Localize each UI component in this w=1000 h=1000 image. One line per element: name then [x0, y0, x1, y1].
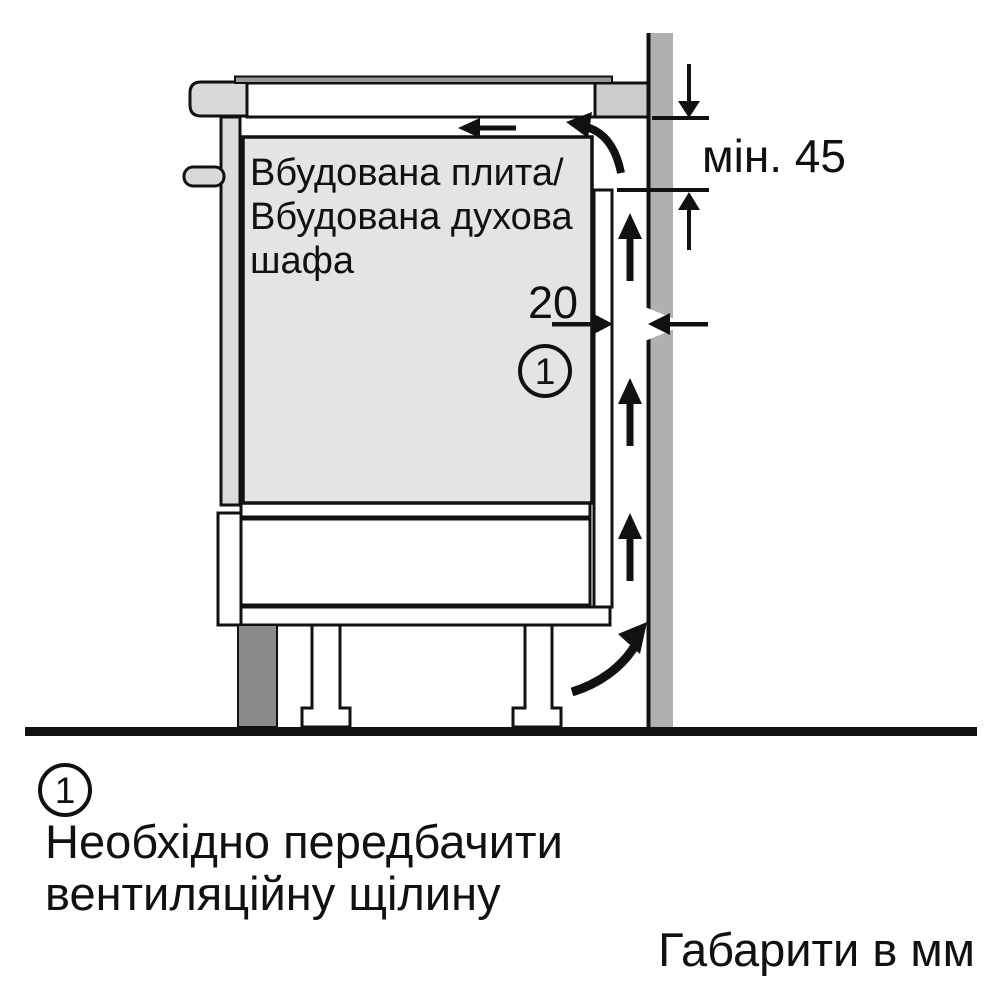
dim-down-arrowhead: [678, 101, 700, 118]
dim-left-shaft: [670, 322, 708, 327]
airflow-curved-bottom-path: [572, 644, 636, 692]
legend-note-line1: Необхідно передбачити: [45, 815, 563, 868]
callout-1-number: 1: [535, 351, 556, 392]
dim-vent-gap-label: 20: [528, 277, 578, 328]
airflow-up-arrowhead-2: [618, 378, 642, 404]
dim-up-arrow-icon: [678, 192, 700, 250]
legend: 1 Необхідно передбачити вентиляційну щіл…: [40, 765, 975, 976]
cabinet-back-panel: [594, 190, 612, 607]
cabinet-bottom-board: [238, 607, 610, 625]
airflow-left-arrowhead: [458, 118, 480, 138]
wall-face-line: [647, 33, 651, 727]
appliance-label-line1: Вбудована плита/: [250, 152, 564, 194]
airflow-curved-bottom-arrow-icon: [572, 622, 647, 692]
appliance-label-line2: Вбудована духова: [250, 196, 574, 238]
airflow-up-arrowhead-1: [618, 213, 642, 239]
appliance-label-line3: шафа: [250, 240, 355, 282]
dim-down-shaft: [687, 64, 691, 104]
drawer-section: [241, 519, 590, 605]
units-note: Габарити в мм: [658, 923, 975, 976]
wall-section: [648, 33, 673, 727]
airflow-up-arrow-3-icon: [618, 513, 642, 581]
airflow-up-shaft-3: [627, 539, 634, 581]
airflow-up-arrowhead-3: [618, 513, 642, 539]
worktop: [190, 77, 648, 118]
installation-diagram-page: Вбудована плита/ Вбудована духова шафа: [0, 0, 1000, 1000]
dim-right-shaft: [552, 322, 592, 327]
airflow-up-shaft-1: [627, 239, 634, 281]
dim-down-arrow-icon: [678, 64, 700, 118]
installation-diagram: Вбудована плита/ Вбудована духова шафа: [0, 0, 1000, 1000]
dim-line-top: [652, 116, 709, 120]
dim-min-clearance-label: мін. 45: [702, 130, 846, 182]
airflow-left-arrow-icon: [458, 118, 516, 138]
wall: [647, 33, 674, 727]
floor-line: [25, 727, 977, 736]
legend-note-line2: вентиляційну щілину: [45, 867, 501, 920]
door-handle: [184, 167, 224, 186]
front-leg: [302, 625, 350, 727]
cabinet-front-panel: [218, 513, 241, 625]
dim-up-shaft: [687, 210, 691, 250]
plinth: [238, 625, 277, 727]
worktop-rear-section: [595, 83, 648, 117]
hob-surface-strip: [235, 77, 612, 84]
dim-line-bottom: [617, 188, 709, 192]
airflow-up-arrow-1-icon: [618, 213, 642, 281]
gap-under-appliance: [241, 503, 590, 517]
airflow-up-shaft-2: [627, 404, 634, 446]
legend-callout-number: 1: [55, 770, 76, 811]
dim-up-arrowhead: [678, 192, 700, 210]
rear-leg: [513, 625, 561, 727]
worktop-band: [247, 83, 595, 117]
airflow-left-shaft: [480, 126, 516, 131]
worktop-front-edge: [190, 82, 247, 116]
airflow-up-arrow-2-icon: [618, 378, 642, 446]
